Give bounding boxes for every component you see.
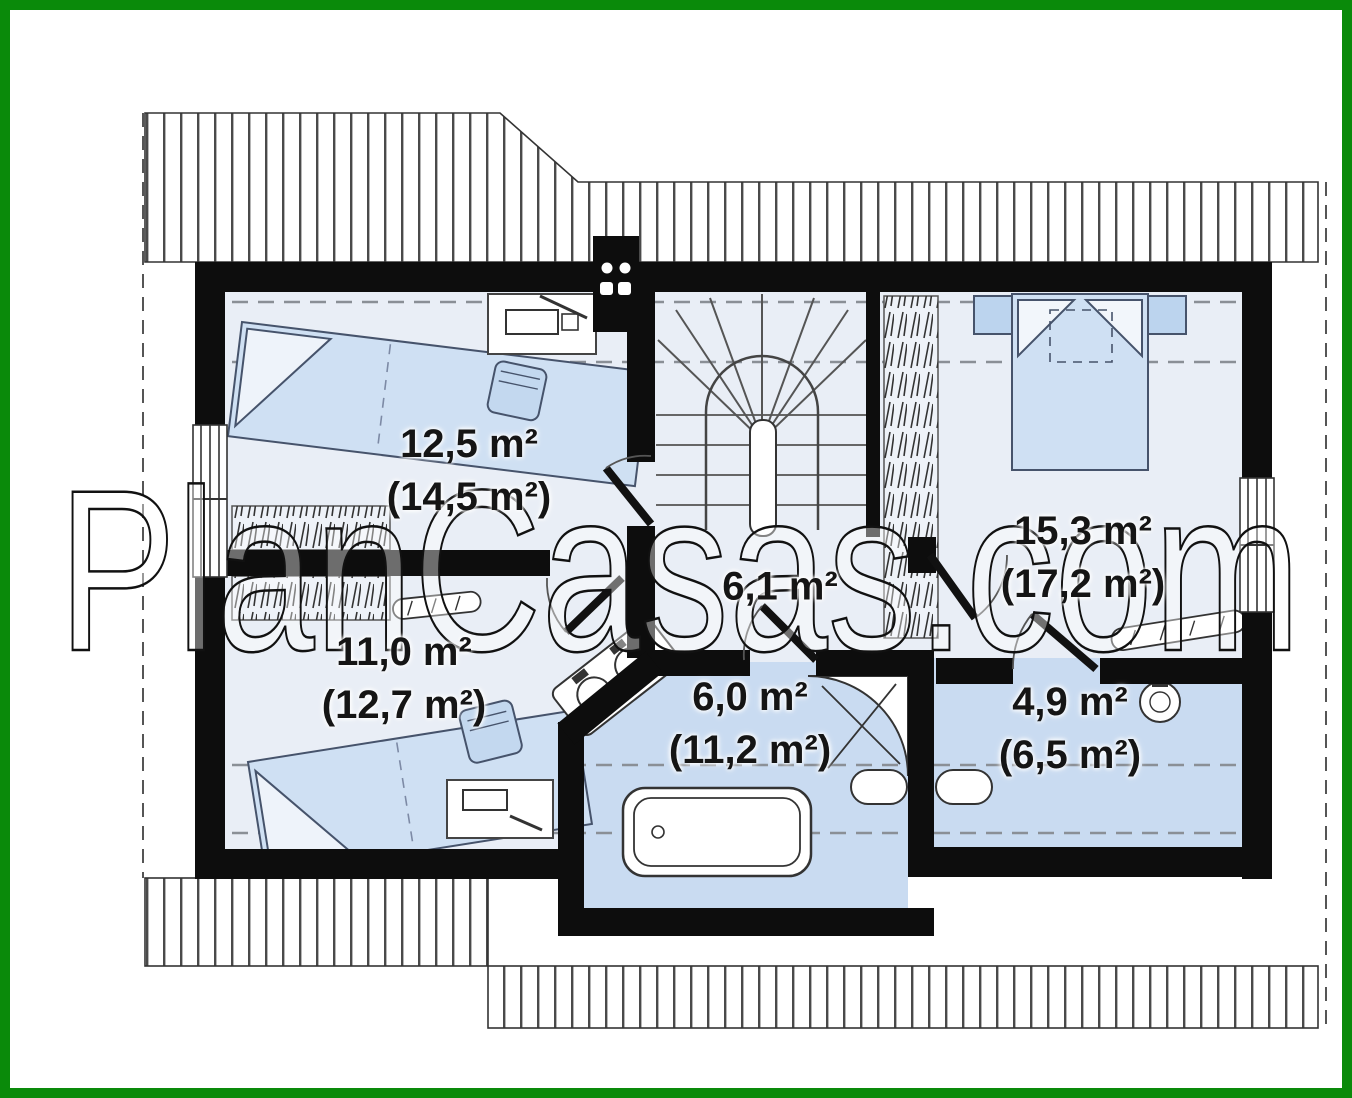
room-label-bedroom-right: 15,3 m² (17,2 m²): [1001, 505, 1166, 611]
room-area-gross: (17,2 m²): [1001, 558, 1166, 611]
roof-eaves-top: [145, 113, 1318, 262]
room-area: 11,0 m²: [336, 630, 472, 674]
nightstand-left: [974, 296, 1012, 334]
room-area: 12,5 m²: [400, 422, 538, 466]
room-area: 6,0 m²: [692, 675, 808, 719]
bathtub: [623, 788, 811, 876]
room-label-bedroom-top-left: 12,5 m² (14,5 m²): [387, 418, 552, 524]
toilet-small-bath: [936, 770, 992, 804]
toilet-bathroom: [851, 770, 907, 804]
plan-frame: PlanCasas.com 12,5 m² (14,5 m²) 11,0 m² …: [0, 0, 1352, 1098]
room-label-bathroom-small: 4,9 m² (6,5 m²): [999, 676, 1141, 782]
room-area-gross: (11,2 m²): [669, 724, 831, 777]
room-area-gross: (12,7 m²): [322, 679, 487, 732]
desk-top: [488, 294, 596, 354]
nightstand-right: [1148, 296, 1186, 334]
room-area-gross: (6,5 m²): [999, 729, 1141, 782]
desk-bottom: [447, 780, 553, 838]
chimney: [593, 236, 639, 332]
room-area-gross: (14,5 m²): [387, 471, 552, 524]
room-label-bedroom-bottom-left: 11,0 m² (12,7 m²): [322, 626, 487, 732]
room-area: 4,9 m²: [1012, 680, 1128, 724]
chair-top: [486, 360, 548, 422]
room-area: 6,1 m²: [722, 565, 838, 609]
room-area: 15,3 m²: [1014, 509, 1152, 553]
room-label-hall: 6,1 m²: [722, 561, 838, 614]
room-label-bathroom: 6,0 m² (11,2 m²): [669, 671, 831, 777]
